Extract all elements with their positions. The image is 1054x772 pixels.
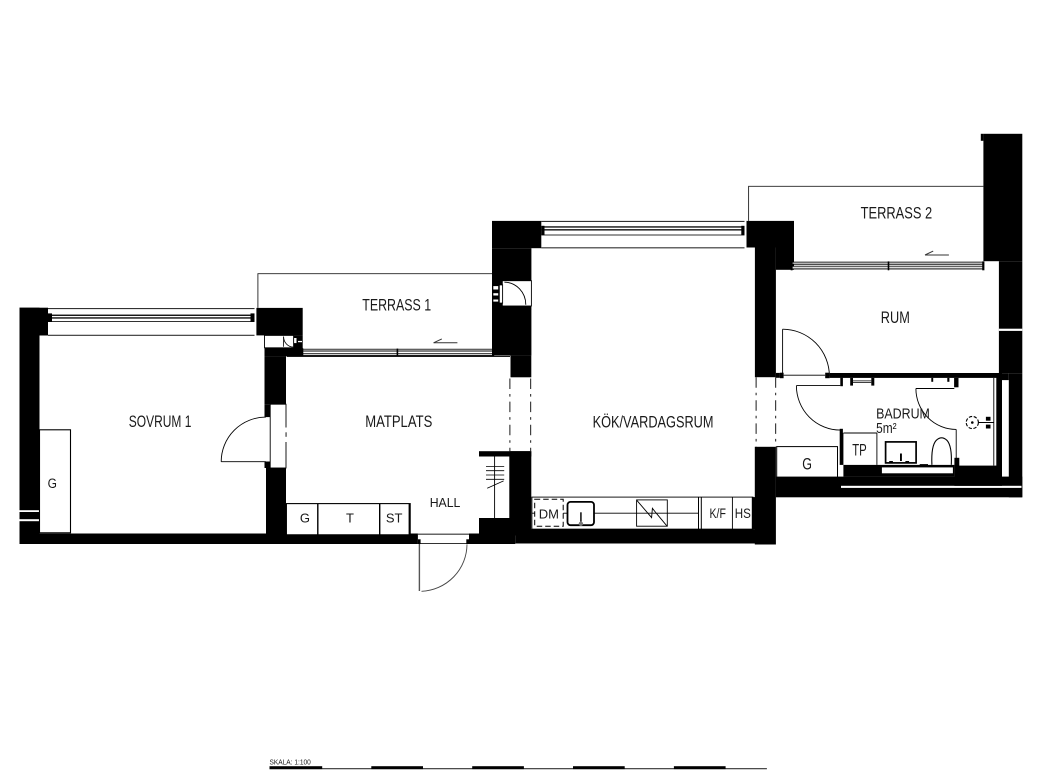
svg-text:5m²: 5m²	[876, 421, 897, 437]
svg-text:MATPLATS: MATPLATS	[365, 413, 432, 431]
svg-text:TERRASS 1: TERRASS 1	[362, 296, 431, 314]
svg-text:TP: TP	[852, 441, 867, 459]
svg-text:G: G	[802, 456, 812, 474]
svg-text:DM: DM	[539, 506, 559, 521]
svg-text:ST: ST	[386, 511, 403, 526]
svg-text:HS: HS	[735, 505, 751, 521]
svg-text:BADRUM: BADRUM	[876, 406, 930, 423]
svg-text:SOVRUM 1: SOVRUM 1	[129, 413, 192, 431]
svg-text:G: G	[48, 476, 57, 491]
svg-text:SKALA: 1:100: SKALA: 1:100	[270, 757, 311, 766]
svg-text:T: T	[346, 511, 354, 526]
svg-text:RUM: RUM	[881, 309, 910, 327]
svg-text:TERRASS 2: TERRASS 2	[861, 204, 933, 222]
svg-text:K/F: K/F	[710, 505, 726, 521]
svg-text:KÖK/VARDAGSRUM: KÖK/VARDAGSRUM	[593, 413, 714, 431]
svg-text:G: G	[300, 511, 310, 526]
svg-text:HALL: HALL	[430, 495, 461, 510]
